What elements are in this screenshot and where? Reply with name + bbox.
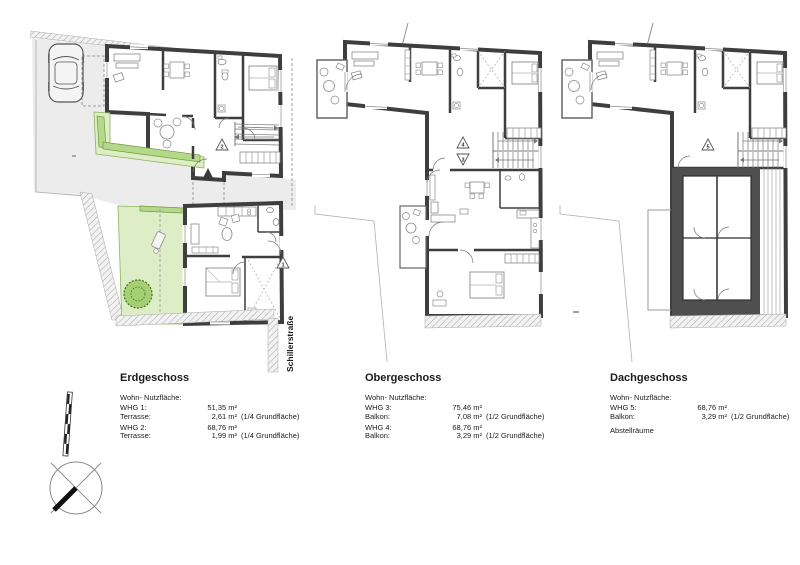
garden-green — [118, 206, 185, 324]
stair-marker-up-label: 5 — [706, 145, 709, 151]
area-table-header: Wohn- Nutzfläche: — [120, 393, 299, 402]
bed — [206, 268, 240, 296]
floorplan-dachgeschoss-drawing: 5 — [555, 10, 800, 375]
bed — [512, 62, 538, 84]
chimney-mark — [647, 23, 653, 46]
street-hatch — [268, 318, 278, 372]
floor-info-dachgeschoss: Dachgeschoss Wohn- Nutzfläche: WHG 5:68,… — [610, 372, 789, 435]
wardrobe — [752, 128, 786, 138]
bed — [249, 66, 277, 90]
floor-info-obergeschoss: Obergeschoss Wohn- Nutzfläche: WHG 3:75,… — [365, 372, 544, 441]
unit-marker-2-label: 2 — [220, 145, 223, 151]
floor-info-erdgeschoss: Erdgeschoss Wohn- Nutzfläche: WHG 1:51,3… — [120, 372, 299, 441]
area-table-header: Wohn- Nutzfläche: — [365, 393, 544, 402]
wardrobe — [507, 128, 541, 138]
tree-icon — [124, 280, 152, 308]
floorplan-obergeschoss-drawing: 4 3 — [310, 10, 555, 375]
area-row: Abstellräume — [610, 427, 789, 436]
floor-title: Dachgeschoss — [610, 372, 789, 384]
property-line — [560, 205, 632, 362]
car-icon — [48, 44, 84, 102]
bed — [470, 272, 504, 298]
area-row: Balkon:3,29 m²(1/2 Grundfläche) — [610, 413, 789, 422]
area-table-header: Wohn- Nutzfläche: — [610, 393, 789, 402]
wardrobe — [505, 254, 539, 263]
roof-hatch — [425, 314, 541, 328]
roof-hatch — [670, 314, 786, 328]
boundary-hatch-left — [80, 192, 124, 320]
wardrobe — [240, 152, 280, 163]
area-row: Terrasse:2,61 m²(1/4 Grundfläche) — [120, 413, 299, 422]
stair-marker-down-label: 3 — [461, 158, 464, 164]
floor-title: Erdgeschoss — [120, 372, 299, 384]
street-label: Schillerstraße — [285, 316, 295, 372]
north-arrow-icon — [40, 452, 112, 524]
property-line — [315, 205, 387, 362]
unit-marker-1-label: 1 — [281, 263, 284, 269]
page: { "colors": { "wall": "#3e3e3e", "site_g… — [0, 0, 800, 565]
chimney-mark — [402, 23, 408, 46]
area-row: Balkon:7,08 m²(1/2 Grundfläche) — [365, 413, 544, 422]
area-row: Terrasse:1,99 m²(1/4 Grundfläche) — [120, 432, 299, 441]
balcony-below-outline — [648, 210, 671, 310]
bed — [757, 62, 783, 84]
floor-title: Obergeschoss — [365, 372, 544, 384]
area-row: Balkon:3,29 m²(1/2 Grundfläche) — [365, 432, 544, 441]
floorplan-erdgeschoss-drawing: 2 — [30, 10, 300, 375]
